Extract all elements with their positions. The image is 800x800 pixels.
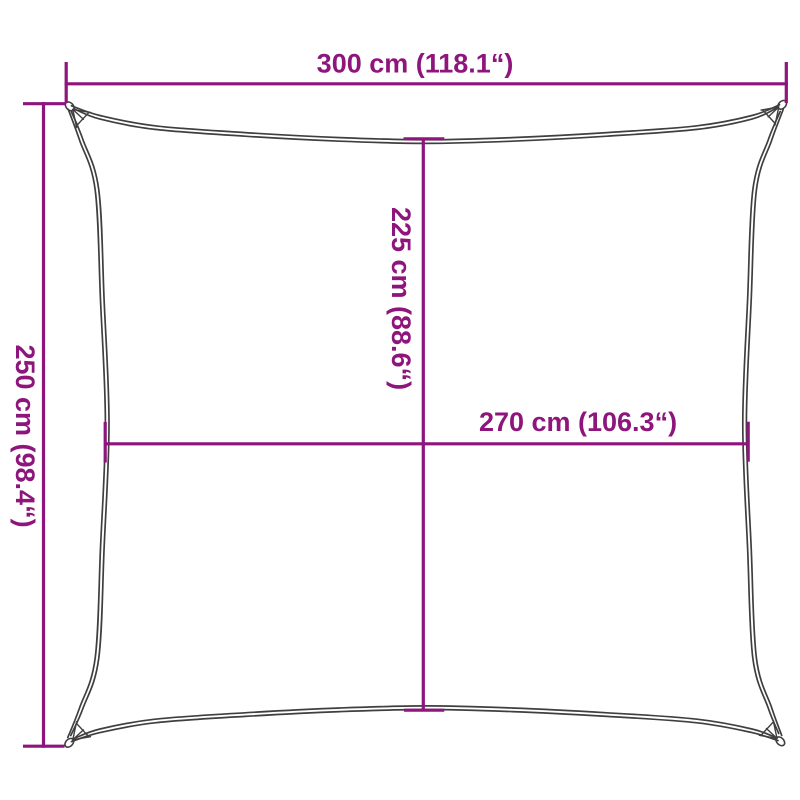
svg-text:300 cm (118.1“): 300 cm (118.1“) [317,49,514,79]
svg-text:250 cm (98.4“): 250 cm (98.4“) [10,344,40,527]
svg-text:225 cm (88.6“): 225 cm (88.6“) [386,207,416,390]
svg-text:270 cm (106.3“): 270 cm (106.3“) [479,407,677,437]
